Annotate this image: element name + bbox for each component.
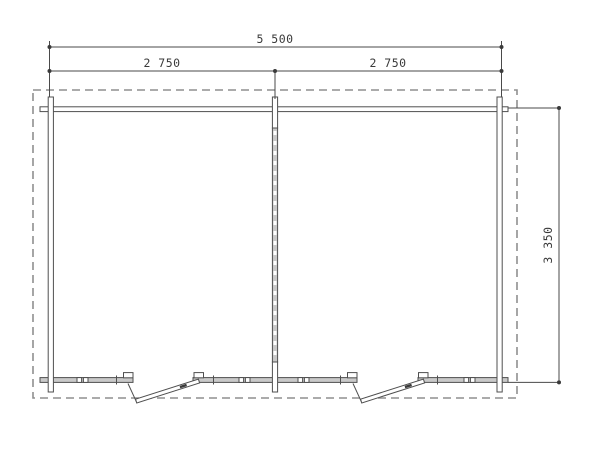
dimension-label-bay-right: 2 750: [369, 56, 406, 70]
door-jamb: [194, 373, 204, 378]
door-swing-line: [128, 384, 136, 402]
door-leaf: [361, 379, 425, 403]
dimension-dot: [557, 106, 561, 110]
dimension-dot: [48, 45, 52, 49]
floor-plan-canvas: 5 500 2 750 2 750 3 350: [0, 0, 600, 450]
dimension-dot: [500, 45, 504, 49]
dimension-dot: [557, 380, 561, 384]
connector-mark: [83, 378, 88, 383]
dimension-dot: [48, 69, 52, 73]
wall-bottom-segment-3: [418, 378, 508, 383]
dimension-label-bay-left: 2 750: [143, 56, 180, 70]
connector-mark: [470, 378, 475, 383]
connector-mark: [464, 378, 469, 383]
dimension-dot: [273, 69, 277, 73]
dimension-bays: 2 750 2 750: [48, 56, 504, 99]
partition-wall-bottom-post: [272, 362, 277, 392]
door-swing-line: [353, 384, 361, 402]
connector-mark: [239, 378, 244, 383]
connector-mark: [77, 378, 82, 383]
door-jamb: [348, 373, 358, 378]
connector-mark: [298, 378, 303, 383]
wall-left: [48, 97, 53, 392]
dimension-dot: [500, 69, 504, 73]
dimension-depth: 3 350: [508, 106, 561, 384]
dimension-label-overall-width: 5 500: [256, 32, 293, 46]
door-leaf: [136, 379, 200, 403]
door-jamb: [124, 373, 134, 378]
dimension-label-depth: 3 350: [541, 226, 555, 263]
door-jamb: [419, 373, 429, 378]
connector-mark: [304, 378, 309, 383]
wall-right: [497, 97, 502, 392]
partition-wall: [272, 97, 277, 392]
partition-wall-top-post: [272, 97, 277, 128]
floor-plan-page: 5 500 2 750 2 750 3 350: [0, 0, 600, 450]
connector-mark: [245, 378, 250, 383]
